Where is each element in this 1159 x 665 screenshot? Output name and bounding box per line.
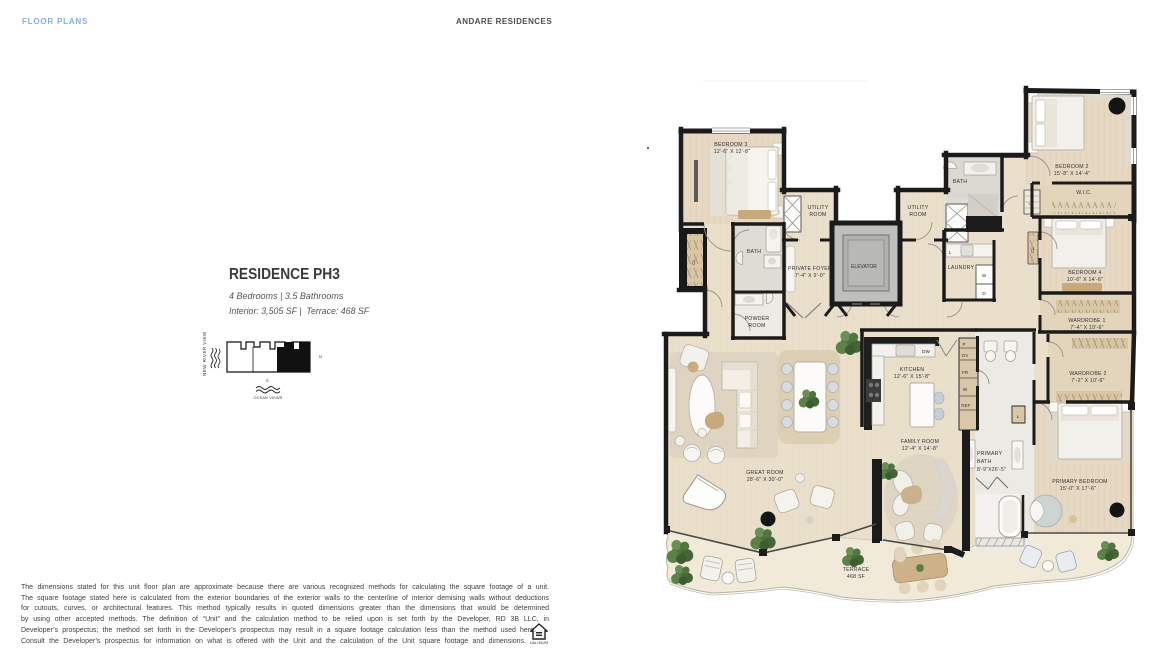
svg-text:BEDROOM 2: BEDROOM 2 bbox=[1055, 164, 1088, 170]
svg-text:CL: CL bbox=[691, 259, 696, 265]
svg-text:W: W bbox=[963, 387, 968, 392]
svg-text:28'-6" X 30'-0": 28'-6" X 30'-0" bbox=[747, 477, 784, 483]
svg-text:12'-6" X 15'-8": 12'-6" X 15'-8" bbox=[894, 374, 931, 380]
svg-text:UTILITY: UTILITY bbox=[807, 205, 828, 211]
svg-text:UTILITY: UTILITY bbox=[907, 205, 928, 211]
svg-text:ELEVATOR: ELEVATOR bbox=[851, 264, 877, 270]
svg-text:POWDER: POWDER bbox=[745, 316, 770, 322]
svg-text:ROOM: ROOM bbox=[909, 212, 926, 218]
svg-text:TERRACE: TERRACE bbox=[843, 567, 870, 573]
svg-text:12'-6" X 12'-8": 12'-6" X 12'-8" bbox=[714, 149, 751, 155]
svg-text:W: W bbox=[982, 273, 987, 278]
svg-text:CL: CL bbox=[1030, 247, 1035, 253]
svg-text:7'-2" X 10'-6": 7'-2" X 10'-6" bbox=[1071, 378, 1104, 384]
svg-text:7'-4" X 9'-0": 7'-4" X 9'-0" bbox=[795, 273, 825, 279]
svg-text:REF: REF bbox=[961, 403, 970, 408]
svg-text:BEDROOM 4: BEDROOM 4 bbox=[1068, 270, 1101, 276]
svg-text:PRIVATE FOYER: PRIVATE FOYER bbox=[788, 266, 832, 272]
svg-text:8'-9"X26'-5": 8'-9"X26'-5" bbox=[977, 467, 1006, 473]
svg-text:GREAT ROOM: GREAT ROOM bbox=[746, 470, 783, 476]
svg-text:LN: LN bbox=[1028, 201, 1033, 206]
svg-text:LAUNDRY: LAUNDRY bbox=[948, 265, 975, 271]
svg-text:PRIMARY: PRIMARY bbox=[977, 451, 1003, 457]
svg-text:W.I.C.: W.I.C. bbox=[1076, 190, 1092, 196]
svg-text:12'-4" X 14'-8": 12'-4" X 14'-8" bbox=[902, 446, 939, 452]
svg-text:FAMILY ROOM: FAMILY ROOM bbox=[901, 439, 939, 445]
svg-text:BATH: BATH bbox=[747, 249, 761, 255]
svg-text:ROOM: ROOM bbox=[748, 323, 765, 329]
svg-text:DW: DW bbox=[922, 349, 930, 354]
svg-text:BEDROOM 3: BEDROOM 3 bbox=[714, 142, 747, 148]
svg-text:468 SF: 468 SF bbox=[847, 574, 865, 580]
svg-text:OV: OV bbox=[962, 353, 970, 358]
svg-text:15'-0" X 17'-6": 15'-0" X 17'-6" bbox=[1060, 486, 1097, 492]
svg-text:BATH: BATH bbox=[977, 459, 991, 465]
svg-text:WARDROBE 2: WARDROBE 2 bbox=[1069, 371, 1106, 377]
svg-text:7'-4" X 10'-6": 7'-4" X 10'-6" bbox=[1070, 325, 1103, 331]
svg-text:15'-8" X 14'-4": 15'-8" X 14'-4" bbox=[1054, 171, 1091, 177]
svg-text:P: P bbox=[962, 342, 965, 347]
svg-text:ROOM: ROOM bbox=[809, 212, 826, 218]
svg-text:L: L bbox=[1017, 414, 1020, 419]
svg-text:BATH: BATH bbox=[953, 179, 967, 185]
svg-text:L: L bbox=[949, 250, 952, 255]
svg-text:WARDROBE 1: WARDROBE 1 bbox=[1068, 318, 1105, 324]
svg-text:10'-6" X 14'-6": 10'-6" X 14'-6" bbox=[1067, 277, 1104, 283]
svg-text:FR: FR bbox=[962, 370, 969, 375]
svg-text:PRIMARY BEDROOM: PRIMARY BEDROOM bbox=[1052, 479, 1107, 485]
svg-text:KITCHEN: KITCHEN bbox=[900, 367, 925, 373]
